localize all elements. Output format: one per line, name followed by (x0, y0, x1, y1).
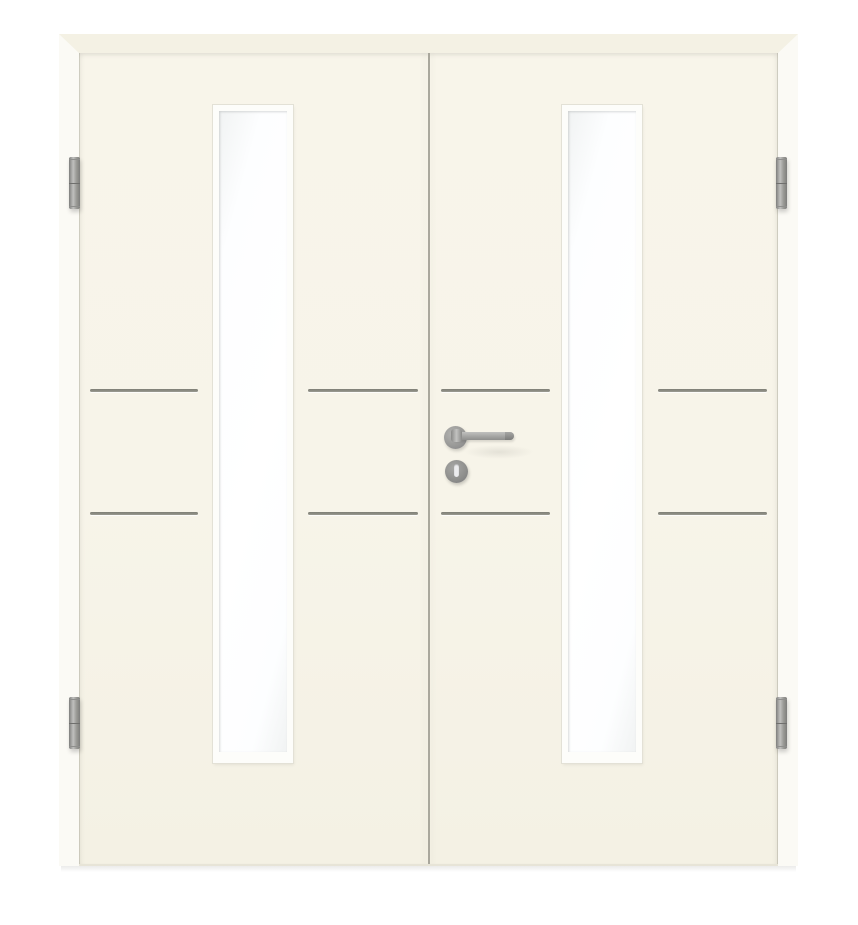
groove-right-leaf-top-inner (658, 389, 767, 392)
hinge-left-bottom (69, 697, 80, 749)
right-glass-lite (562, 105, 642, 763)
groove-right-leaf-bottom-outer (441, 512, 550, 515)
hinge-right-bottom (776, 697, 787, 749)
handle-drop-shadow (464, 445, 534, 459)
right-glass-pane (568, 111, 636, 752)
groove-left-leaf-top-outer (90, 389, 198, 392)
keyhole-slot (454, 464, 459, 477)
keyhole-escutcheon[interactable] (445, 460, 468, 483)
hinge-left-top (69, 157, 80, 209)
groove-left-leaf-bottom-inner (308, 512, 418, 515)
door-frame-casing (59, 34, 798, 866)
handle-neck (451, 429, 462, 442)
groove-left-leaf-top-inner (308, 389, 418, 392)
groove-right-leaf-top-outer (441, 389, 550, 392)
left-door-leaf (79, 53, 428, 866)
groove-right-leaf-bottom-inner (658, 512, 767, 515)
hinge-right-top (776, 157, 787, 209)
product-photo-double-door (0, 0, 858, 925)
left-glass-pane (219, 111, 287, 752)
door-assembly (79, 53, 778, 866)
left-glass-lite (213, 105, 293, 763)
floor-shadow (61, 866, 796, 872)
right-door-leaf (430, 53, 778, 866)
groove-left-leaf-bottom-outer (90, 512, 198, 515)
